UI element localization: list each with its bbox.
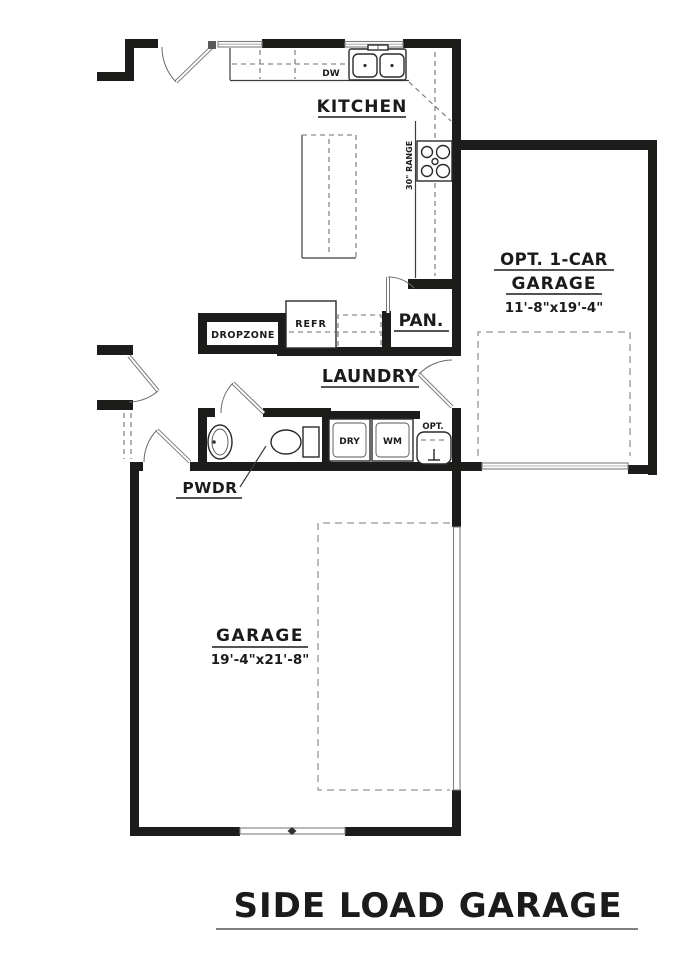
garage-entry-door (144, 430, 190, 462)
plan-title: SIDE LOAD GARAGE (233, 886, 622, 926)
opt-garage-footprint (478, 332, 630, 456)
garage-rear-window (240, 827, 345, 835)
front-sidelite-window (218, 42, 262, 48)
washer-label: WM (383, 437, 402, 447)
dishwasher-label: DW (322, 69, 339, 79)
powder-label: PWDR (182, 479, 237, 497)
kitchen-island (302, 135, 356, 258)
opt-garage-label-line2: GARAGE (512, 274, 597, 294)
garage-footprint (318, 523, 450, 790)
labels: KITCHEN DW 30" RANGE REFR DROPZONE PAN. … (176, 69, 638, 929)
toilet (271, 427, 319, 457)
dryer-label: DRY (339, 437, 360, 447)
garage-side-opening (454, 527, 461, 790)
front-door (162, 41, 216, 82)
laundry-opt-garage-door (419, 360, 452, 407)
garage-label: GARAGE (216, 626, 304, 646)
utility-sink (417, 432, 451, 464)
refrigerator-label: REFR (295, 319, 327, 330)
laundry-label: LAUNDRY (322, 367, 418, 387)
pantry-label: PAN. (399, 311, 444, 331)
dropzone-label: DROPZONE (211, 330, 275, 341)
floor-plan-page: KITCHEN DW 30" RANGE REFR DROPZONE PAN. … (0, 0, 700, 979)
floor-plan-drawing: KITCHEN DW 30" RANGE REFR DROPZONE PAN. … (0, 0, 700, 979)
kitchen-sink (349, 45, 406, 80)
opt-garage-door-opening (482, 463, 628, 469)
hall-cased-opening (124, 413, 131, 459)
powder-sink (208, 425, 232, 459)
garage-dimensions: 19'-4"x21'-8" (211, 652, 310, 668)
opt-garage-label-line1: OPT. 1-CAR (500, 250, 608, 269)
opt-garage-dimensions: 11'-8"x19'-4" (505, 300, 604, 316)
kitchen-label: KITCHEN (317, 97, 408, 117)
hall-door (129, 356, 158, 402)
utility-sink-label: OPT. (422, 422, 443, 432)
range (417, 141, 452, 181)
range-label: 30" RANGE (405, 141, 414, 190)
powder-door (221, 383, 264, 413)
